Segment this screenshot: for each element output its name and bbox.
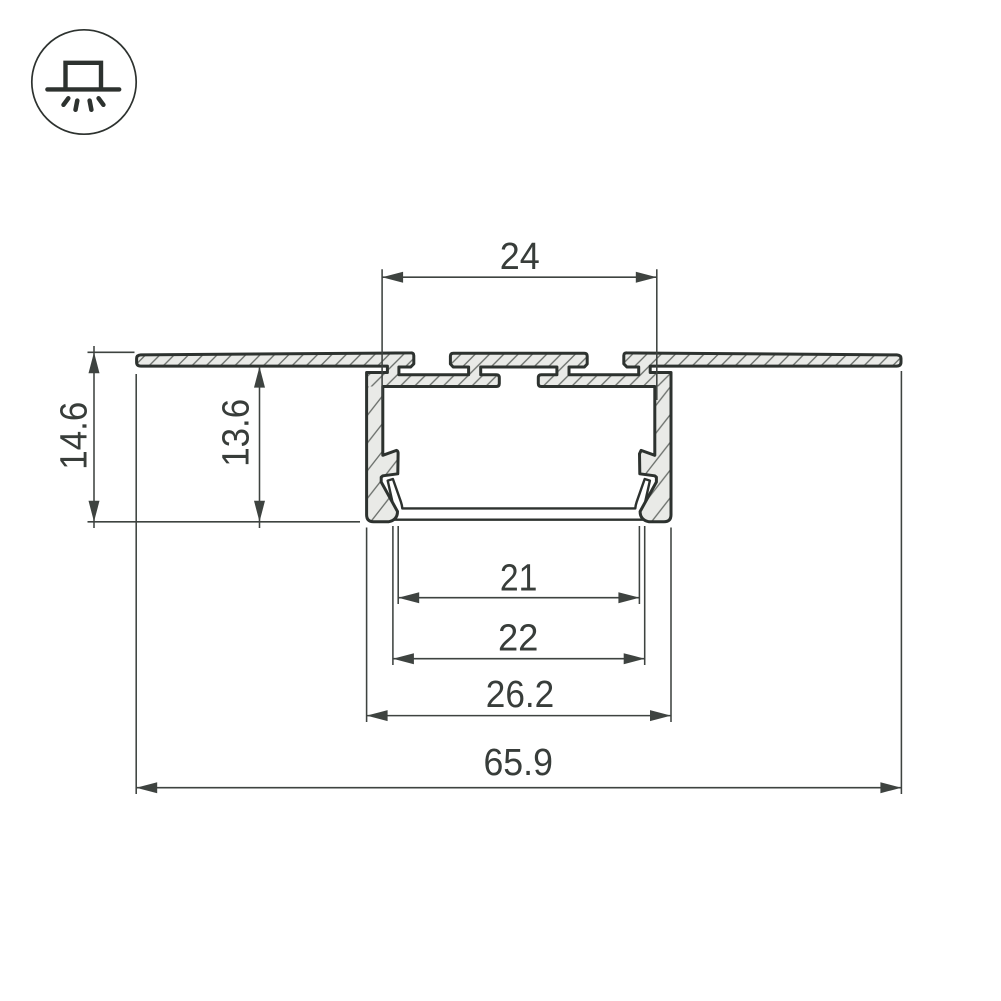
svg-text:22: 22: [498, 618, 539, 660]
svg-text:14.6: 14.6: [53, 402, 95, 470]
svg-text:26.2: 26.2: [486, 674, 555, 716]
svg-text:65.9: 65.9: [483, 742, 553, 784]
svg-text:21: 21: [500, 557, 538, 599]
svg-text:24: 24: [500, 236, 540, 278]
svg-text:13.6: 13.6: [215, 399, 257, 467]
